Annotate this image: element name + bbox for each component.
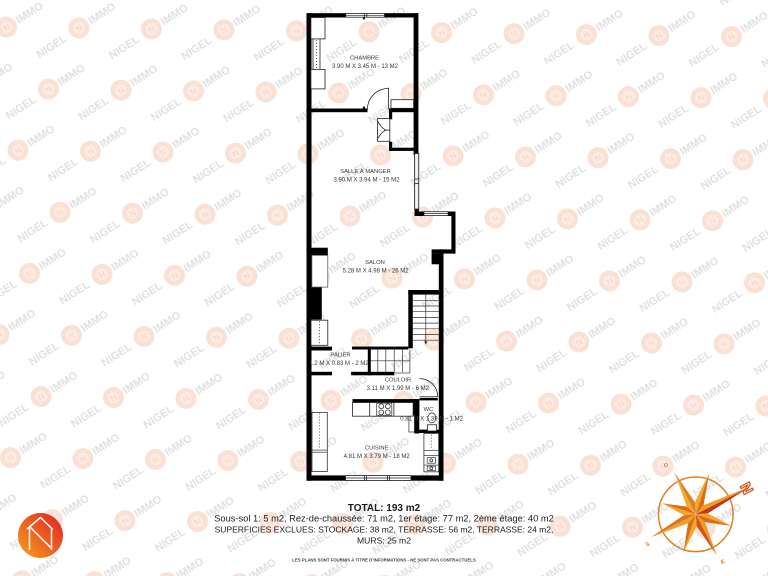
svg-text:TOTAL: 193 m2: TOTAL: 193 m2 xyxy=(348,503,421,514)
svg-text:MURS: 25 m2: MURS: 25 m2 xyxy=(357,536,411,546)
svg-text:WC: WC xyxy=(424,407,434,413)
svg-text:Sous-sol 1: 5 m2, Rez-de-chaus: Sous-sol 1: 5 m2, Rez-de-chaussée: 71 m2… xyxy=(214,514,554,524)
svg-text:CHAMBRE: CHAMBRE xyxy=(350,56,379,62)
svg-text:3.90 M X 3.94 M - 15 M2: 3.90 M X 3.94 M - 15 M2 xyxy=(333,177,400,183)
svg-text:3.90 M X 3.45 M - 13 M2: 3.90 M X 3.45 M - 13 M2 xyxy=(332,64,399,70)
svg-text:SALLE À MANGER: SALLE À MANGER xyxy=(340,168,391,175)
svg-text:3.11 M X 1.99 M - 6 M2: 3.11 M X 1.99 M - 6 M2 xyxy=(367,386,430,392)
svg-text:SUPERFICIES EXCLUES: STOCKAGE:: SUPERFICIES EXCLUES: STOCKAGE: 38 m2, TE… xyxy=(215,525,554,535)
svg-text:4.81 M X 3.79 M - 18 M2: 4.81 M X 3.79 M - 18 M2 xyxy=(344,454,411,460)
svg-text:CUISINE: CUISINE xyxy=(365,446,389,452)
svg-text:1.2 M X 0.83 M - 2 M2: 1.2 M X 0.83 M - 2 M2 xyxy=(309,361,369,367)
svg-text:SALON: SALON xyxy=(365,260,385,266)
svg-text:LES PLANS SONT FOURNIS À TITRE: LES PLANS SONT FOURNIS À TITRE D’INFORMA… xyxy=(292,558,476,563)
svg-text:COULOIR: COULOIR xyxy=(385,378,411,384)
svg-text:PALIER: PALIER xyxy=(330,353,350,359)
svg-text:5.28 M X 4.98 M - 26 M2: 5.28 M X 4.98 M - 26 M2 xyxy=(343,268,410,274)
svg-text:0.81 M X 1.39 M - 1 M2: 0.81 M X 1.39 M - 1 M2 xyxy=(400,417,463,423)
